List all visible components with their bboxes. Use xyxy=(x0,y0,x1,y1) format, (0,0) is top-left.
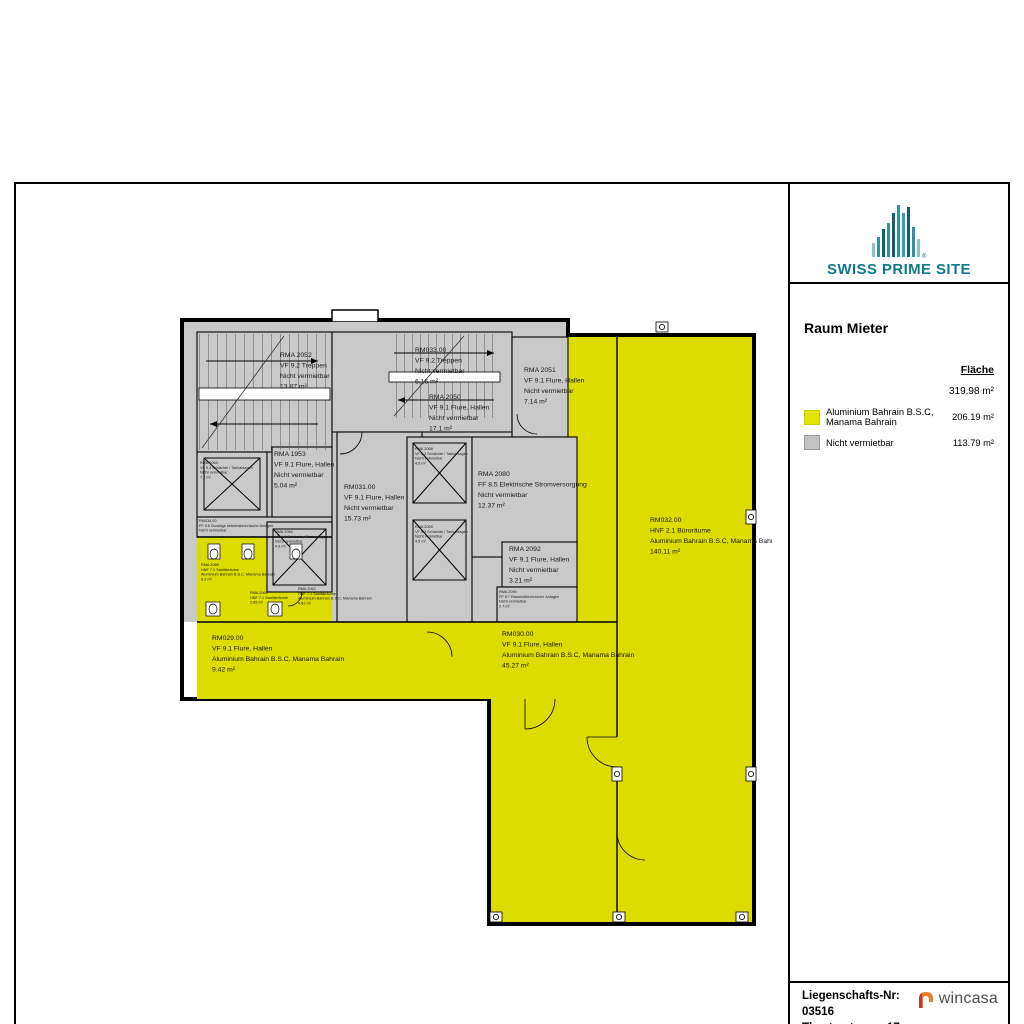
legend-row-tenant: Aluminium Bahrain B.S.C, Manama Bahrain … xyxy=(804,407,994,427)
wincasa-logo: wincasa xyxy=(916,988,998,1024)
legend-value: 113.79 m² xyxy=(953,438,994,448)
legend-row-non-rentable: Nicht vermietbar 113.79 m² xyxy=(804,435,994,450)
legend-swatch-gray xyxy=(804,435,820,450)
floor-plan: RMA 2052VF 9.2 TreppenNicht vermietbar13… xyxy=(172,302,772,942)
top-notch xyxy=(332,310,378,322)
registered-mark: ® xyxy=(922,253,927,259)
legend: Raum Mieter Fläche 319.98 m² Aluminium B… xyxy=(790,284,1008,450)
legend-label: Aluminium Bahrain B.S.C, Manama Bahrain xyxy=(826,407,948,427)
legend-label: Nicht vermietbar xyxy=(826,438,949,448)
brand-logo: ® SWISS PRIME SITE xyxy=(790,184,1008,284)
property-number: Liegenschafts-Nr: 03516 xyxy=(802,988,916,1020)
legend-value: 206.19 m² xyxy=(952,412,994,422)
address: Theaterstrasse 17, Winterthur xyxy=(802,1020,916,1024)
house-icon xyxy=(916,990,936,1008)
legend-title: Raum Mieter xyxy=(804,320,994,336)
wincasa-text: wincasa xyxy=(939,990,998,1008)
page: RMA 2052VF 9.2 TreppenNicht vermietbar13… xyxy=(0,0,1024,1024)
brand-bars-icon: ® xyxy=(870,205,928,259)
footer: Liegenschafts-Nr: 03516 Theaterstrasse 1… xyxy=(790,981,1008,1024)
legend-column-header: Fläche xyxy=(804,364,994,376)
legend-swatch-yellow xyxy=(804,410,820,425)
legend-total-value: 319.98 m² xyxy=(804,386,994,397)
sheet: RMA 2052VF 9.2 TreppenNicht vermietbar13… xyxy=(14,182,1010,1024)
side-panel: ® SWISS PRIME SITE Raum Mieter Fläche 31… xyxy=(788,184,1008,1024)
footer-text: Liegenschafts-Nr: 03516 Theaterstrasse 1… xyxy=(802,988,916,1024)
brand-name: SWISS PRIME SITE xyxy=(827,261,971,278)
